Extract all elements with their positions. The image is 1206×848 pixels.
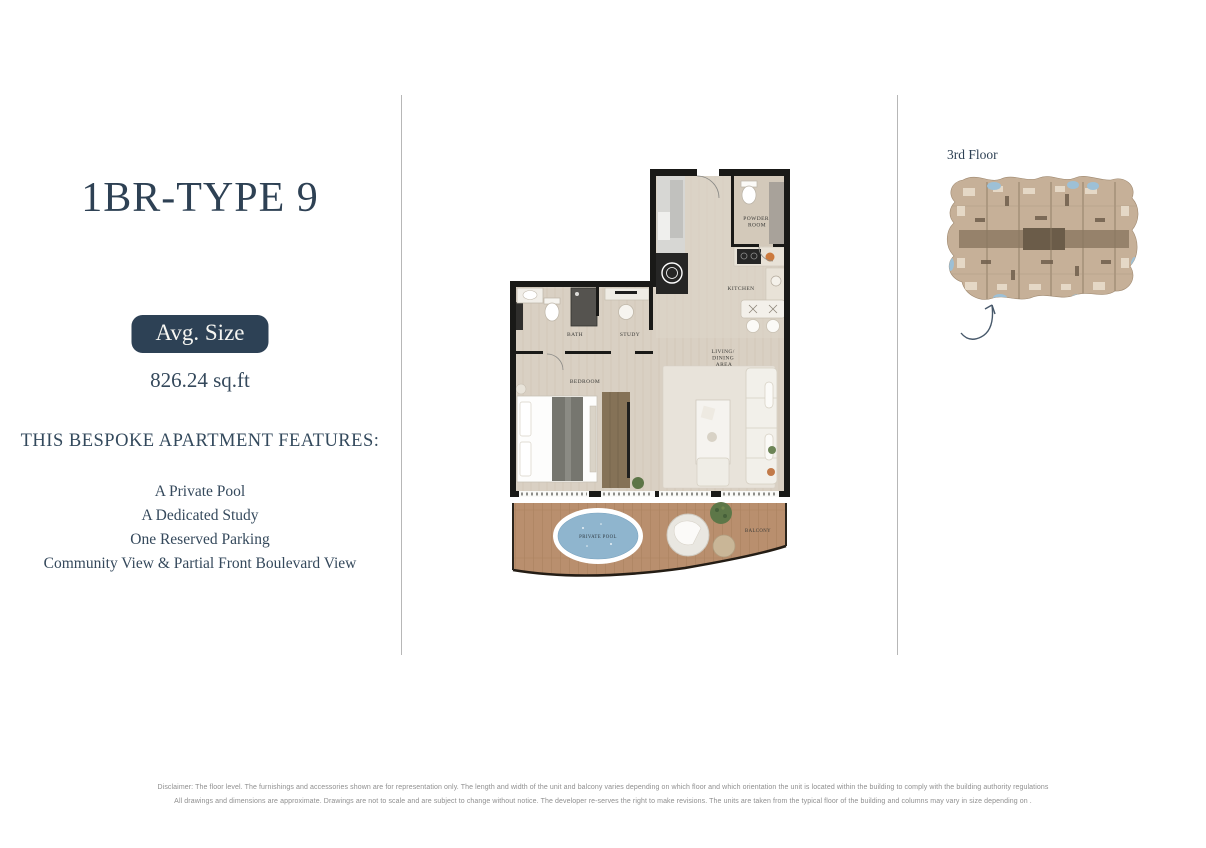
features-list: A Private Pool A Dedicated Study One Res… (0, 480, 400, 576)
disclaimer-line-1: Disclaimer: The floor level. The furnish… (40, 784, 1166, 791)
disclaimer: Disclaimer: The floor level. The furnish… (40, 784, 1166, 812)
lounge-chair (667, 514, 709, 556)
feature-item: One Reserved Parking (0, 528, 400, 552)
private-pool-label: PRIVATE POOL (579, 535, 617, 540)
brochure-page: 1BR-TYPE 9 Avg. Size 826.24 sq.ft THIS B… (0, 0, 1206, 848)
laundry-closet (656, 253, 688, 294)
features-heading: THIS BESPOKE APARTMENT FEATURES: (0, 431, 400, 452)
unit-location-arrow-icon (955, 293, 1015, 343)
windows (519, 491, 779, 497)
entry-corridor (657, 175, 685, 253)
floor-level-label: 3rd Floor (947, 147, 998, 163)
balcony-label: BALCONY (745, 529, 771, 534)
side-table (713, 535, 735, 557)
floor-plan-image: POWDER ROOM KITCHEN LIVING/ DINING AREA … (425, 150, 880, 598)
feature-item: A Dedicated Study (0, 504, 400, 528)
disclaimer-line-2: All drawings and dimensions are approxim… (40, 798, 1166, 805)
bedroom-label: BEDROOM (570, 379, 600, 385)
study-label: STUDY (620, 332, 640, 338)
feature-item: A Private Pool (0, 480, 400, 504)
living-furniture (663, 366, 777, 488)
avg-size-badge: Avg. Size (131, 315, 268, 353)
balcony (513, 502, 786, 576)
kitchen-label: KITCHEN (728, 286, 755, 292)
balcony-plant (710, 502, 732, 524)
avg-size-value: 826.24 sq.ft (0, 368, 400, 393)
page-title: 1BR-TYPE 9 (0, 174, 400, 222)
feature-item: Community View & Partial Front Boulevard… (0, 552, 400, 576)
bedroom-furniture (516, 384, 644, 489)
divider-right (897, 95, 898, 655)
bath-label: BATH (567, 332, 583, 338)
divider-left (401, 95, 402, 655)
left-panel: 1BR-TYPE 9 Avg. Size 826.24 sq.ft THIS B… (0, 0, 400, 700)
